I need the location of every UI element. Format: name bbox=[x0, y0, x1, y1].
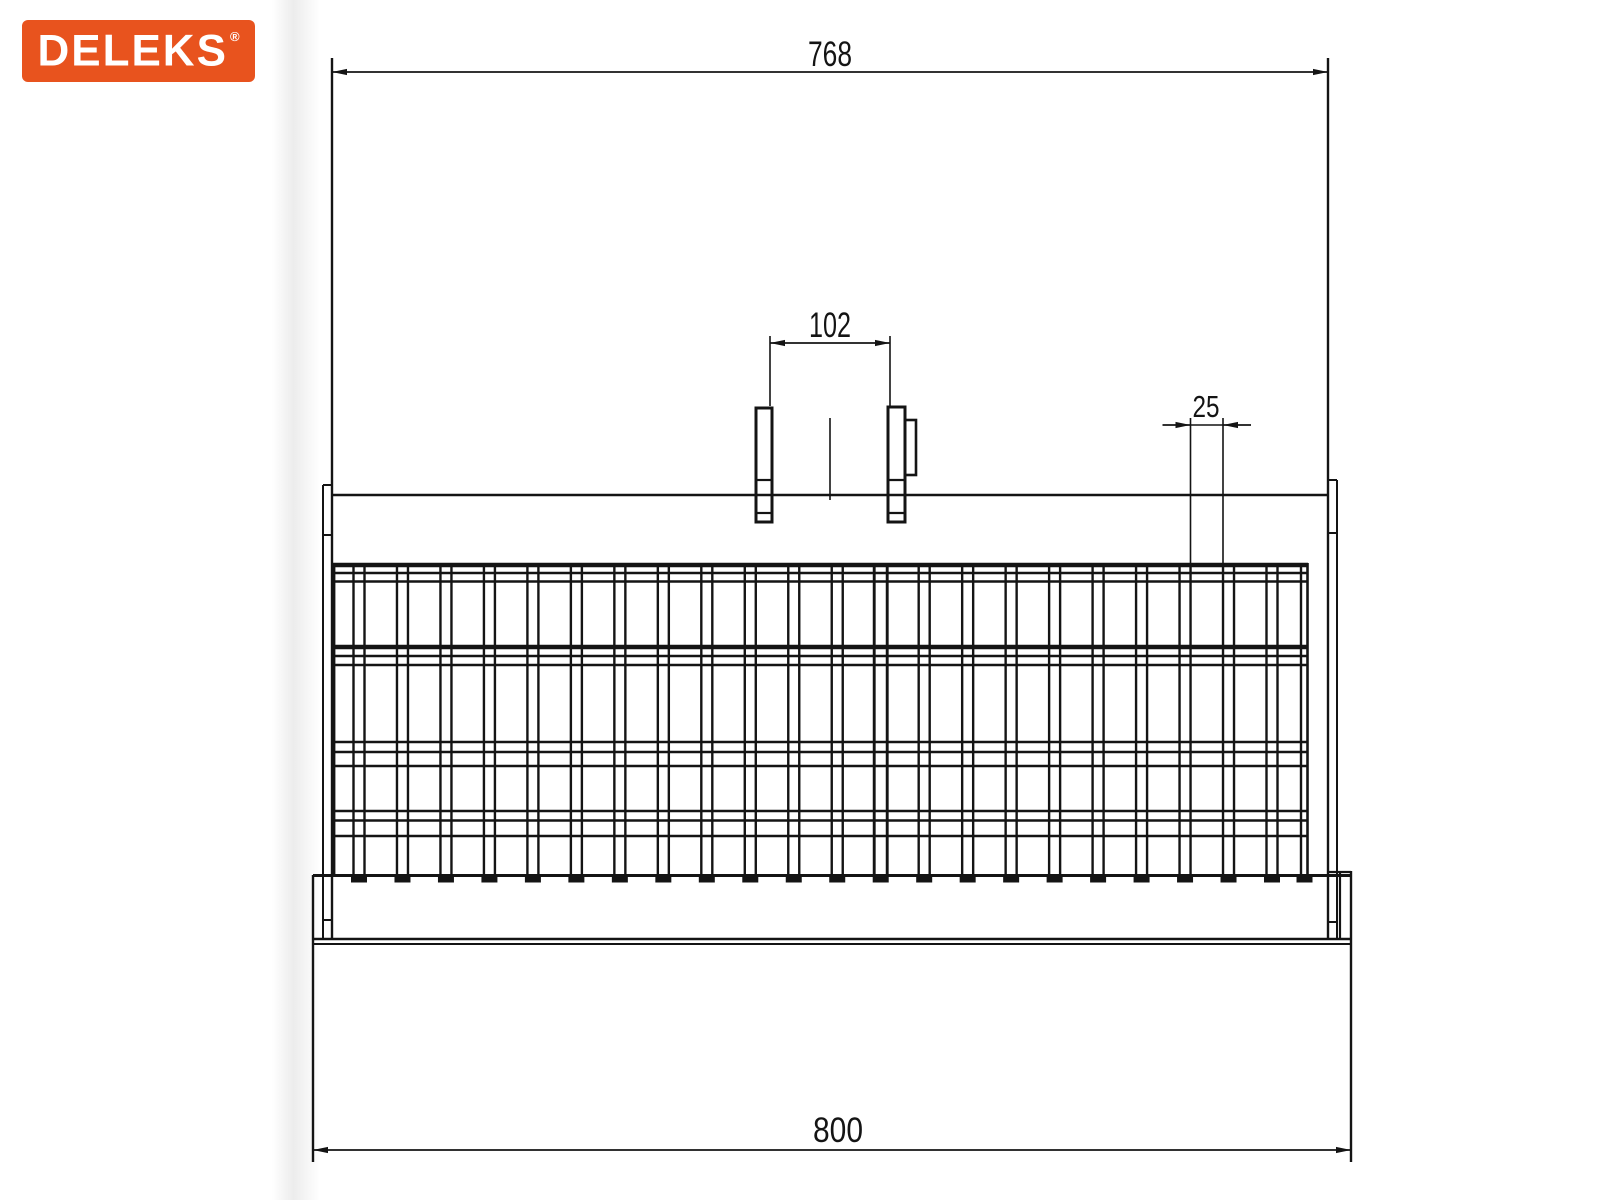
logo-text: DELEKS bbox=[37, 29, 227, 74]
dimension-top-width: 768 bbox=[332, 35, 1328, 75]
mount-plates bbox=[756, 407, 916, 522]
dimension-bottom-width: 800 bbox=[313, 1111, 1351, 1153]
dimension-tine-gap: 25 bbox=[1163, 389, 1252, 563]
dim-label-bottom-width: 800 bbox=[813, 1111, 863, 1150]
deleks-logo: DELEKS ® bbox=[22, 20, 255, 82]
dim-label-top-width: 768 bbox=[808, 35, 852, 74]
dim-label-bracket-spacing: 102 bbox=[809, 306, 851, 345]
technical-drawing: 76810225800 bbox=[0, 0, 1600, 1200]
grid-mesh-bars bbox=[354, 563, 1278, 876]
dimension-bracket-spacing: 102 bbox=[770, 306, 890, 406]
dim-label-tine-gap: 25 bbox=[1193, 389, 1220, 424]
drawing-page: 76810225800 DELEKS ® bbox=[0, 0, 1600, 1200]
registered-trademark-icon: ® bbox=[230, 29, 240, 44]
